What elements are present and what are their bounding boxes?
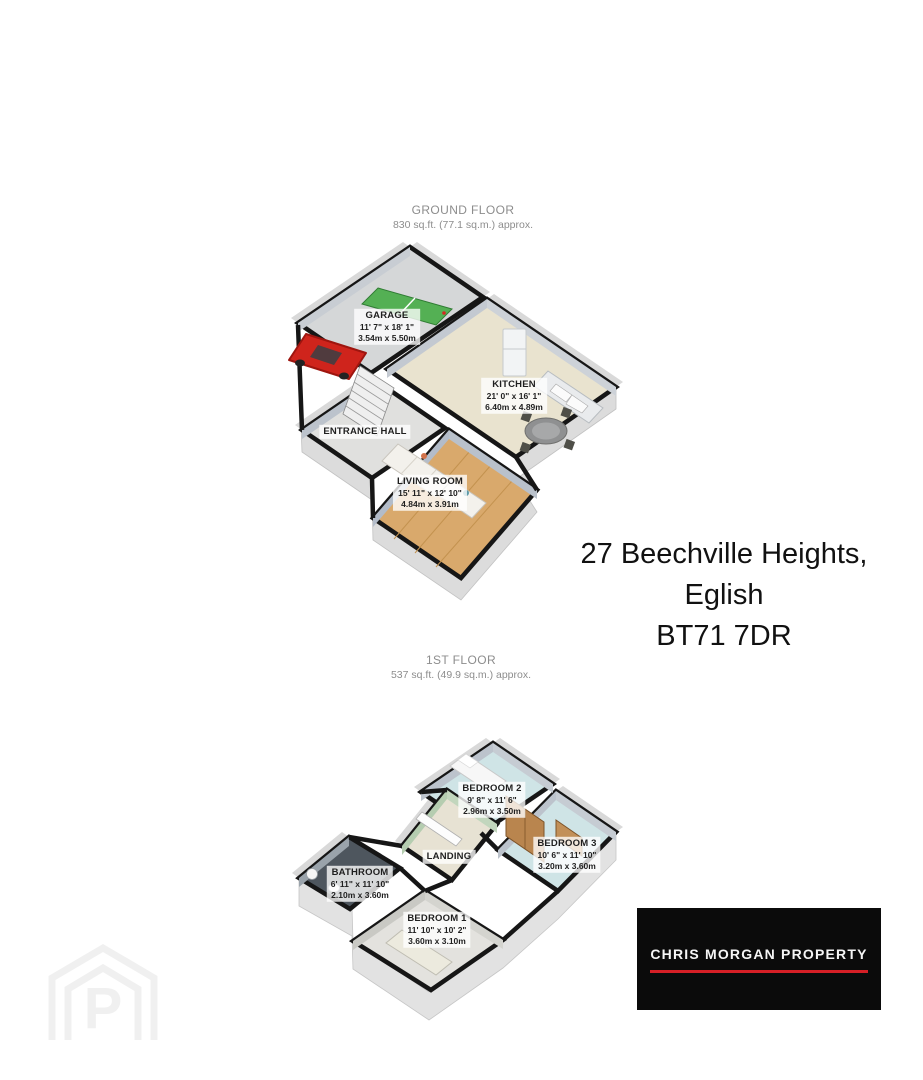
bedroom3-name: BEDROOM 3 xyxy=(537,838,596,850)
ground-floor-title-block: GROUND FLOOR 830 sq.ft. (77.1 sq.m.) app… xyxy=(313,203,613,231)
bedroom3-label: BEDROOM 3 10' 6" x 11' 10" 3.20m x 3.60m xyxy=(533,837,600,873)
bedroom2-dims-ft: 9' 8" x 11' 6" xyxy=(462,795,521,806)
bedroom2-label: BEDROOM 2 9' 8" x 11' 6" 2.96m x 3.50m xyxy=(458,782,525,818)
kitchen-name: KITCHEN xyxy=(485,379,543,391)
landing-name: LANDING xyxy=(427,851,472,863)
svg-text:P: P xyxy=(84,976,123,1041)
kitchen-dims-ft: 21' 0" x 16' 1" xyxy=(485,391,543,402)
bedroom1-dims-ft: 11' 10" x 10' 2" xyxy=(407,925,466,936)
first-floor-area: 537 sq.ft. (49.9 sq.m.) approx. xyxy=(311,669,611,681)
living-room-name: LIVING ROOM xyxy=(397,476,463,488)
bathroom-name: BATHROOM xyxy=(331,867,389,879)
bedroom1-dims-m: 3.60m x 3.10m xyxy=(407,936,466,947)
bedroom3-dims-m: 3.20m x 3.60m xyxy=(537,861,596,872)
property-address: 27 Beechville Heights, Eglish BT71 7DR xyxy=(524,534,923,658)
bedroom1-label: BEDROOM 1 11' 10" x 10' 2" 3.60m x 3.10m xyxy=(403,912,470,948)
living-room-label: LIVING ROOM 15' 11" x 12' 10" 4.84m x 3.… xyxy=(393,475,467,511)
bedroom2-name: BEDROOM 2 xyxy=(462,783,521,795)
bedroom3-dims-ft: 10' 6" x 11' 10" xyxy=(537,850,596,861)
garage-label: GARAGE 11' 7" x 18' 1" 3.54m x 5.50m xyxy=(354,309,420,345)
living-room-dims-ft: 15' 11" x 12' 10" xyxy=(397,488,463,499)
agency-logo-inner: CHRIS MORGAN PROPERTY xyxy=(650,946,867,973)
kitchen-label: KITCHEN 21' 0" x 16' 1" 6.40m x 4.89m xyxy=(481,378,547,414)
entrance-hall-label: ENTRANCE HALL xyxy=(319,425,410,439)
agency-name: CHRIS MORGAN PROPERTY xyxy=(650,946,867,962)
ground-floor-area: 830 sq.ft. (77.1 sq.m.) approx. xyxy=(313,219,613,231)
bedroom1-name: BEDROOM 1 xyxy=(407,913,466,925)
bedroom2-dims-m: 2.96m x 3.50m xyxy=(462,806,521,817)
house-p-logo-icon: P xyxy=(52,948,154,1041)
garage-dims-ft: 11' 7" x 18' 1" xyxy=(358,322,416,333)
living-room-dims-m: 4.84m x 3.91m xyxy=(397,499,463,510)
garage-name: GARAGE xyxy=(358,310,416,322)
agency-logo: CHRIS MORGAN PROPERTY xyxy=(637,908,881,1010)
ground-floor-title: GROUND FLOOR xyxy=(313,203,613,217)
entrance-hall-name: ENTRANCE HALL xyxy=(323,426,406,438)
bathroom-label: BATHROOM 6' 11" x 11' 10" 2.10m x 3.60m xyxy=(327,866,393,902)
address-line3: BT71 7DR xyxy=(524,616,923,657)
bathroom-dims-m: 2.10m x 3.60m xyxy=(331,890,389,901)
address-line2: Eglish xyxy=(524,575,923,616)
landing-label: LANDING xyxy=(423,850,476,864)
kitchen-dims-m: 6.40m x 4.89m xyxy=(485,402,543,413)
address-line1: 27 Beechville Heights, xyxy=(524,534,923,575)
bathroom-dims-ft: 6' 11" x 11' 10" xyxy=(331,879,389,890)
garage-dims-m: 3.54m x 5.50m xyxy=(358,333,416,344)
fridge xyxy=(503,329,526,376)
